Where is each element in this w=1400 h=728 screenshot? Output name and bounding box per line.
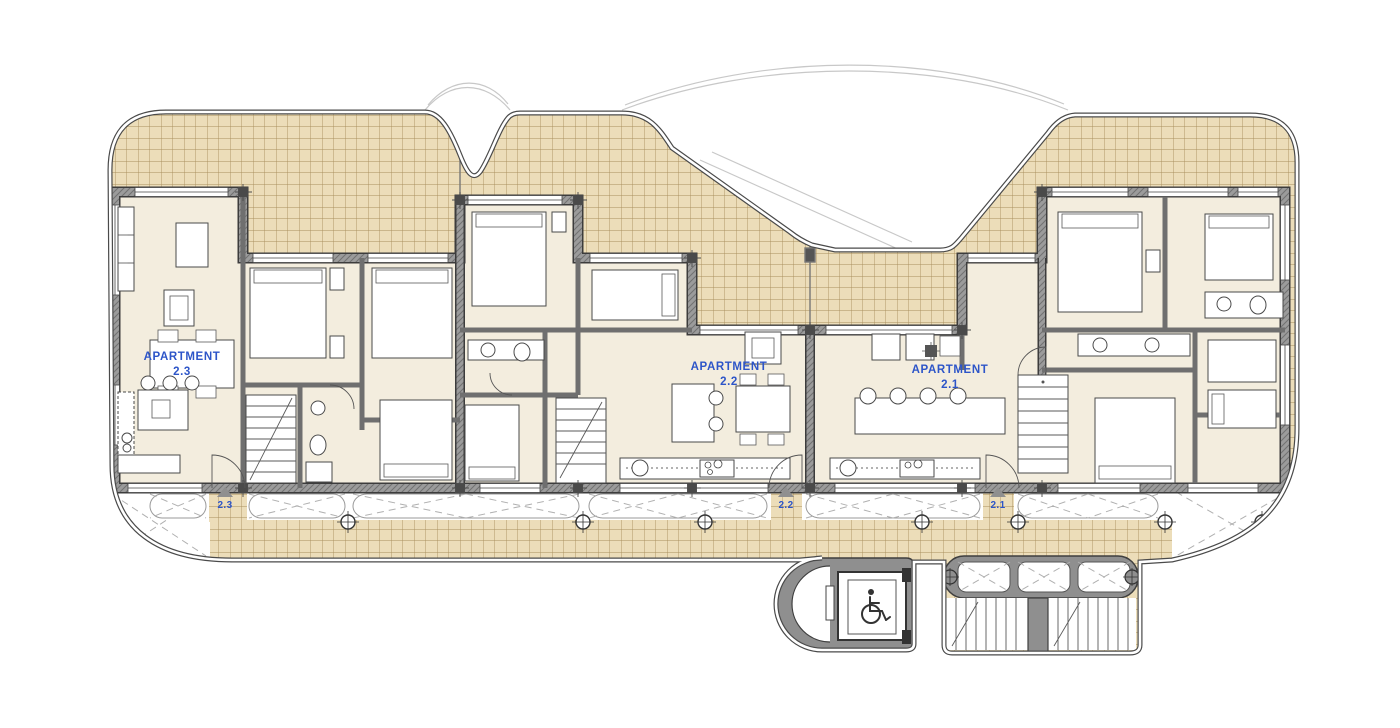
floor-plan-page: APARTMENT 2.3 APARTMENT 2.2 APARTMENT 2.… bbox=[0, 0, 1400, 728]
entrance-label-2-3: 2.3 bbox=[217, 500, 232, 511]
apartment-2-3-label-line1: APARTMENT bbox=[144, 351, 221, 363]
floor-plan-drawing: APARTMENT 2.3 APARTMENT 2.2 APARTMENT 2.… bbox=[0, 0, 1400, 728]
exterior-stairs bbox=[941, 556, 1141, 653]
apartment-2-2-label-line1: APARTMENT bbox=[691, 361, 768, 373]
entrance-label-2-1: 2.1 bbox=[990, 500, 1005, 511]
stair-2-3 bbox=[246, 395, 296, 483]
apartment-2-1-label-line2: 2.1 bbox=[941, 379, 959, 391]
apartment-2-2-label-line2: 2.2 bbox=[720, 376, 738, 388]
entrance-label-2-2: 2.2 bbox=[778, 500, 793, 511]
elevator bbox=[776, 558, 914, 650]
stair-2-2 bbox=[556, 398, 606, 483]
apartment-2-1-label-line1: APARTMENT bbox=[912, 364, 989, 376]
apartment-2-3-label-line2: 2.3 bbox=[173, 366, 191, 378]
